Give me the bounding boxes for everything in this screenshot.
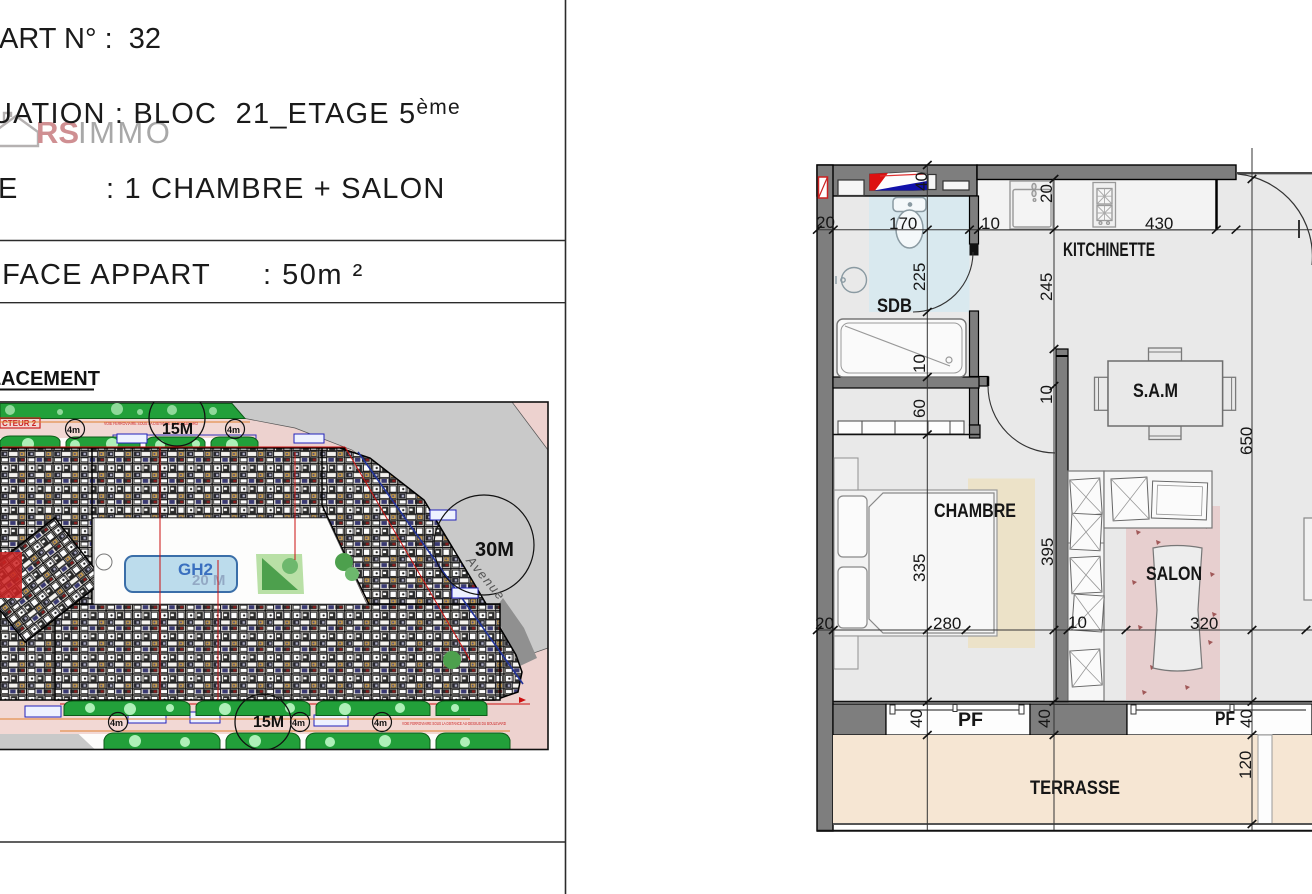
svg-text:E: E [0, 173, 17, 205]
svg-text:15M: 15M [162, 421, 193, 438]
svg-text:10: 10 [1068, 613, 1087, 632]
svg-text:335: 335 [910, 554, 929, 582]
svg-text:225: 225 [910, 263, 929, 291]
svg-text:15M: 15M [253, 714, 284, 731]
svg-text:UATION : BLOC 21_ETAGE 5ème: UATION : BLOC 21_ETAGE 5ème [0, 96, 461, 130]
svg-text:20 M: 20 M [192, 572, 225, 589]
svg-text:: 50m ²: : 50m ² [263, 259, 364, 291]
svg-text:430: 430 [1145, 214, 1173, 233]
svg-text:40: 40 [907, 709, 926, 728]
svg-text:20: 20 [1037, 184, 1056, 203]
svg-text:20: 20 [816, 213, 835, 232]
svg-text:395: 395 [1038, 538, 1057, 566]
svg-text:: 1 CHAMBRE + SALON: : 1 CHAMBRE + SALON [106, 173, 445, 205]
svg-text:320: 320 [1190, 614, 1218, 633]
svg-text:SDB: SDB [877, 296, 912, 317]
svg-text:CHAMBRE: CHAMBRE [934, 501, 1016, 522]
svg-text:20: 20 [815, 614, 834, 633]
svg-text:60: 60 [910, 399, 929, 418]
svg-text:30M: 30M [475, 539, 514, 561]
svg-text:4m: 4m [110, 718, 123, 728]
svg-text:4m: 4m [374, 718, 387, 728]
svg-text:40: 40 [1237, 709, 1256, 728]
svg-text:EMPLACEMENT: EMPLACEMENT [0, 368, 100, 390]
svg-text:10: 10 [981, 214, 1000, 233]
svg-text:4m: 4m [67, 425, 80, 435]
svg-text:SALON: SALON [1146, 564, 1202, 585]
svg-text:170: 170 [889, 214, 917, 233]
svg-text:40: 40 [1035, 709, 1054, 728]
svg-text:VOIE FERROVIAIRE SOUS LA DISTA: VOIE FERROVIAIRE SOUS LA DISTANCE AU-DES… [402, 721, 507, 726]
svg-text:10: 10 [910, 354, 929, 373]
svg-text:PF: PF [1215, 709, 1235, 730]
svg-text:S.A.M: S.A.M [1133, 381, 1178, 402]
svg-text:KITCHINETTE: KITCHINETTE [1063, 240, 1155, 261]
svg-text:RFACE APPART: RFACE APPART [0, 259, 211, 291]
svg-text:650: 650 [1237, 427, 1256, 455]
svg-text:4m: 4m [292, 718, 305, 728]
svg-text:4m: 4m [227, 425, 240, 435]
svg-text:10: 10 [1037, 385, 1056, 404]
svg-text:PF: PF [958, 710, 983, 731]
svg-text:TERRASSE: TERRASSE [1030, 778, 1120, 799]
svg-text:280: 280 [933, 614, 961, 633]
svg-text:245: 245 [1037, 273, 1056, 301]
svg-text:ART N° : 32: ART N° : 32 [0, 23, 161, 55]
svg-text:CTEUR 2: CTEUR 2 [2, 419, 37, 428]
